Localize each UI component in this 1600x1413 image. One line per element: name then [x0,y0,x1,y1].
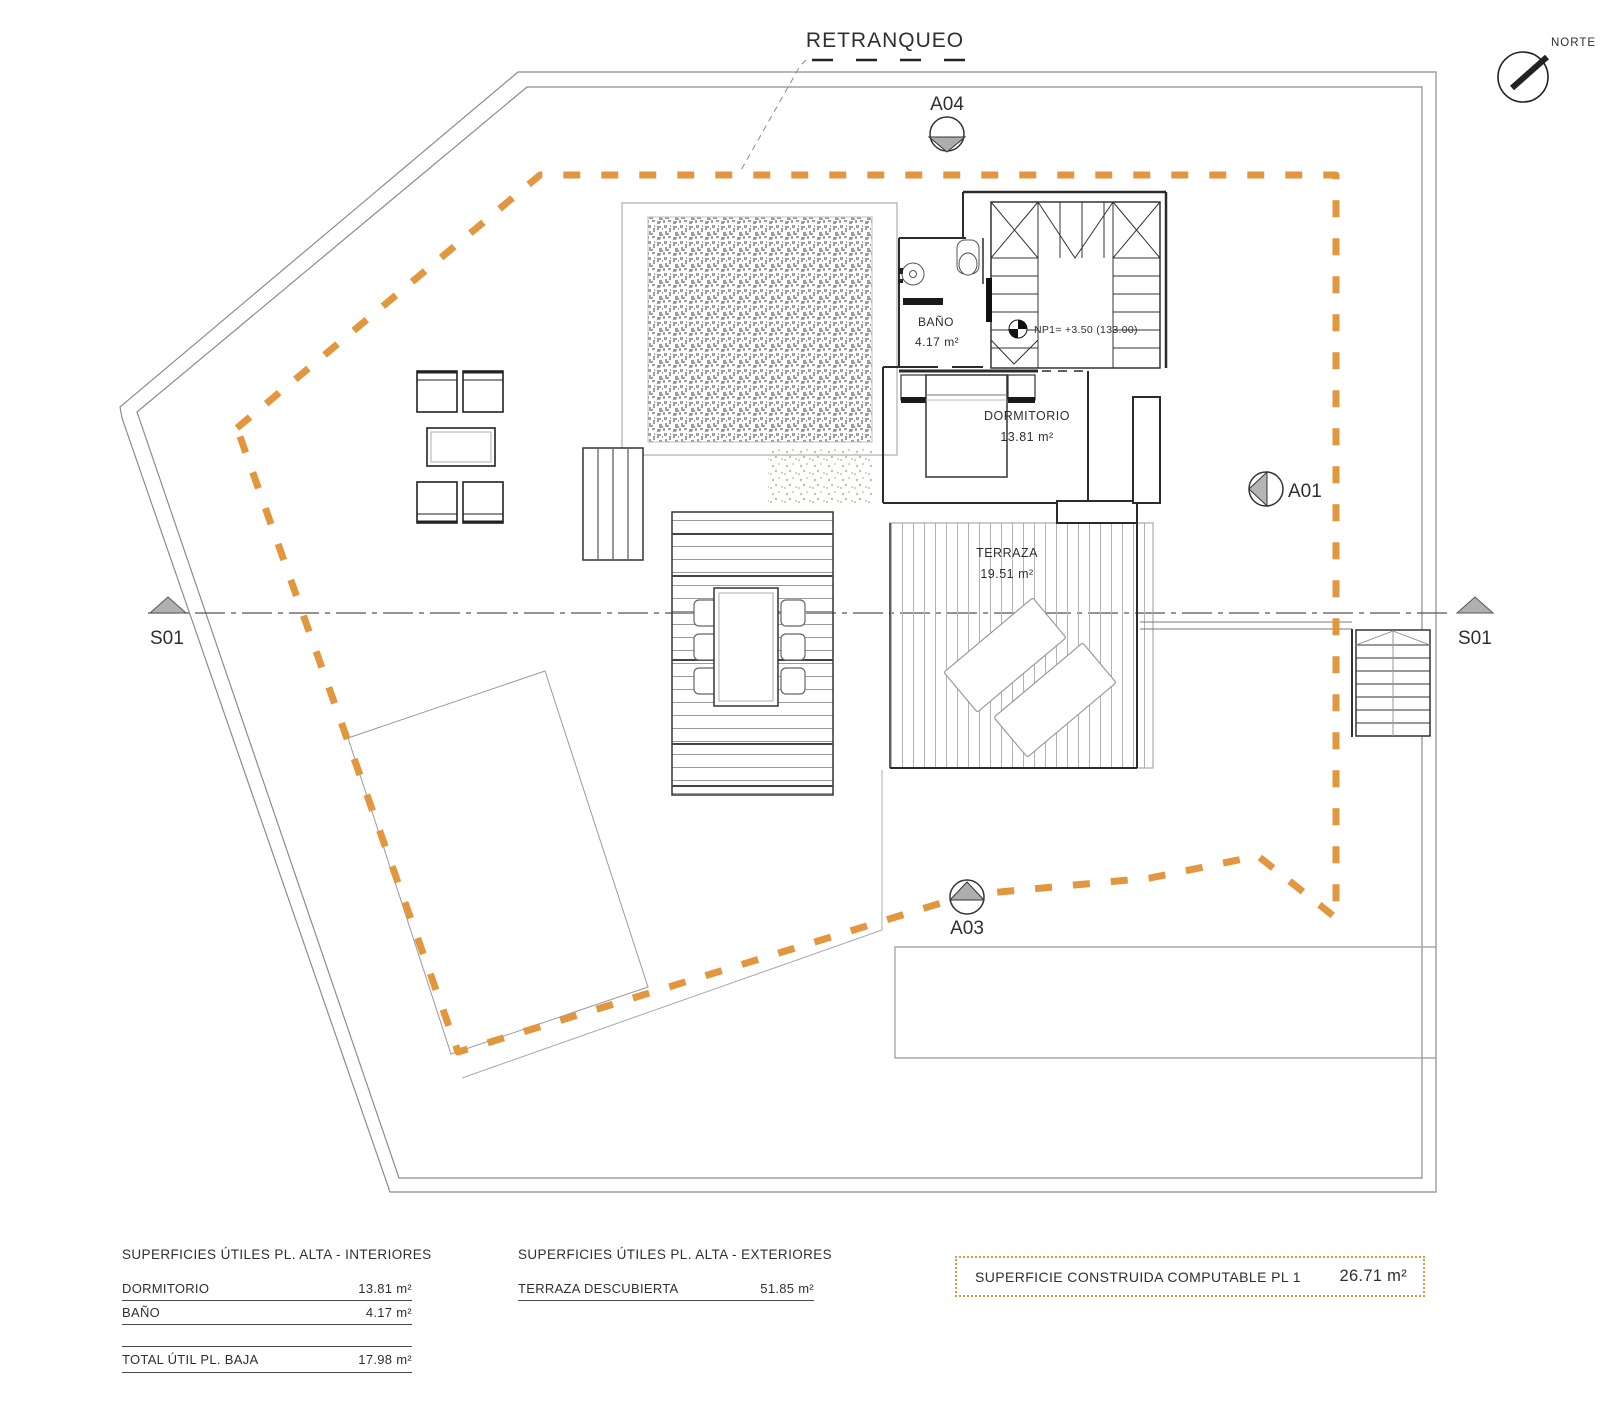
retranqueo-label: RETRANQUEO [806,29,964,52]
terraza-label: TERRAZA [976,546,1038,560]
view-marker-a03: A03 [950,880,984,939]
dormitorio-label: DORMITORIO [984,409,1070,423]
view-marker-a04: A04 [929,94,965,152]
a03-label: A03 [950,918,984,939]
terraza-area: 19.51 m² [980,567,1033,581]
gravel-area [622,203,897,455]
floor-plan-canvas: RETRANQUEO NP1= +3.50 (133.00) BAÑO 4.17… [0,0,1600,1413]
s01-left-label: S01 [150,628,184,649]
sink [902,263,924,285]
west-stair [583,448,643,560]
norte-label: NORTE [1551,37,1596,49]
bano-label: BAÑO [918,315,954,329]
level-marker-text: NP1= +3.50 (133.00) [1034,324,1138,336]
door-leaf [903,298,943,305]
dormitorio-area: 13.81 m² [1000,430,1053,444]
floor-plan-sheet: RETRANQUEO NP1= +3.50 (133.00) BAÑO 4.17… [0,0,1600,1413]
a01-label: A01 [1288,481,1322,502]
s01-right-label: S01 [1458,628,1492,649]
planting-bed [768,447,872,505]
bano-area: 4.17 m² [915,335,959,349]
dining-table [714,588,778,706]
main-staircase [986,202,1160,368]
a04-label: A04 [930,94,964,115]
dining-set [694,588,805,706]
